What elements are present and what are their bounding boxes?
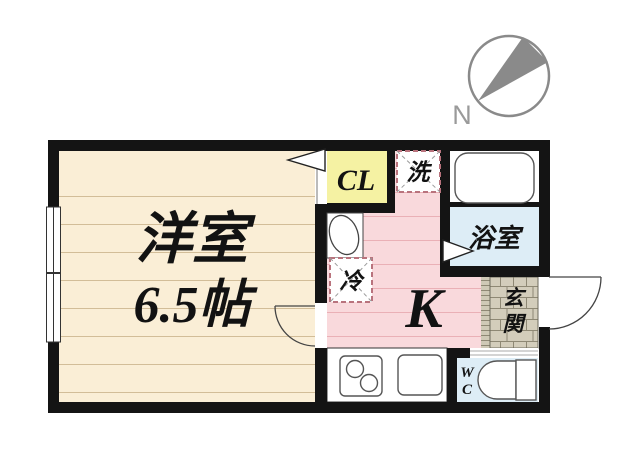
floorplan-page: N 洋室 6.5帖 CL 洗 浴室 K 冷 玄 関 W C <box>0 0 639 455</box>
sink-icon <box>398 355 442 395</box>
north-label: N <box>452 100 472 130</box>
kitchen-label: K <box>404 278 446 340</box>
western-room-area: 6.5帖 <box>133 277 258 334</box>
entrance-label-1: 玄 <box>503 286 527 310</box>
kitchen-door-opening <box>315 303 327 348</box>
laundry-label: 洗 <box>407 160 433 185</box>
toilet-label-2: C <box>462 382 473 398</box>
refrigerator-label: 冷 <box>340 269 366 294</box>
wall-closet-bottom <box>315 203 395 213</box>
closet-label: CL <box>337 164 375 197</box>
front-door-opening <box>539 277 550 327</box>
toilet-icon <box>478 360 536 400</box>
western-room-name: 洋室 <box>136 209 256 271</box>
wall-bottom <box>48 402 550 413</box>
entrance-step-hatch <box>481 277 490 348</box>
wall-closet-right <box>387 151 395 213</box>
wc-door <box>470 348 538 358</box>
stove-icon <box>340 356 382 396</box>
floorplan-canvas: N 洋室 6.5帖 CL 洗 浴室 K 冷 玄 関 W C <box>0 0 639 455</box>
entrance-label-2: 関 <box>503 312 527 336</box>
bathroom-label: 浴室 <box>468 224 524 253</box>
window-left <box>47 207 61 342</box>
washbasin <box>325 212 364 259</box>
bathtub-icon <box>455 153 534 203</box>
wall-top <box>48 140 550 151</box>
toilet-label-1: W <box>460 365 475 381</box>
wall-genkan-wc-stub <box>447 348 470 358</box>
wall-bath-bottom <box>440 266 550 277</box>
